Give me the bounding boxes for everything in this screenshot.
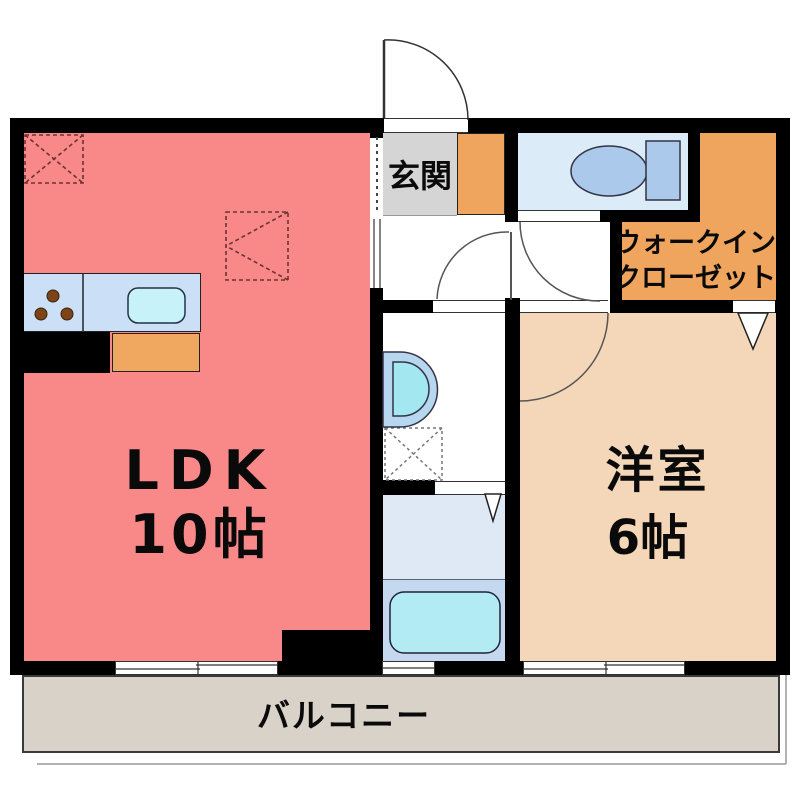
washroom-door-swing — [437, 232, 511, 300]
bedroom-door-swing — [520, 313, 608, 401]
kitchen-sink — [83, 273, 185, 332]
genkan-step-line — [374, 137, 380, 288]
window-sash-lines — [115, 661, 685, 675]
ldk-label-name: LDK — [40, 444, 360, 498]
balcony-label: バルコニー — [144, 699, 544, 732]
symbol-equipment-space-top-left — [25, 135, 83, 183]
bathtub — [390, 592, 500, 653]
ldk-label-size: 10帖 — [40, 508, 360, 562]
wic-label-line2: クローゼット — [603, 265, 787, 292]
toilet-fixture — [571, 141, 680, 200]
fixtures-overlay — [0, 0, 800, 800]
floor-plan: LDK 10帖 洋室 6帖 ウォークイン クローゼット 玄関 バルコニー — [0, 0, 800, 800]
entrance-door-swing — [384, 40, 468, 120]
symbol-equipment-space-center — [226, 212, 288, 280]
wic-label-line1: ウォークイン — [603, 230, 787, 257]
bedroom-label-name: 洋室 — [565, 446, 750, 495]
bathroom-folding-door-mark — [485, 494, 501, 521]
toilet-door-swing — [520, 222, 600, 301]
washbasin — [383, 352, 438, 427]
entrance-label: 玄関 — [383, 160, 457, 192]
wic-folding-door-mark — [738, 313, 768, 349]
stove-burners — [35, 290, 73, 320]
symbol-washing-machine-space — [385, 428, 442, 480]
bedroom-label-size: 6帖 — [555, 514, 740, 562]
